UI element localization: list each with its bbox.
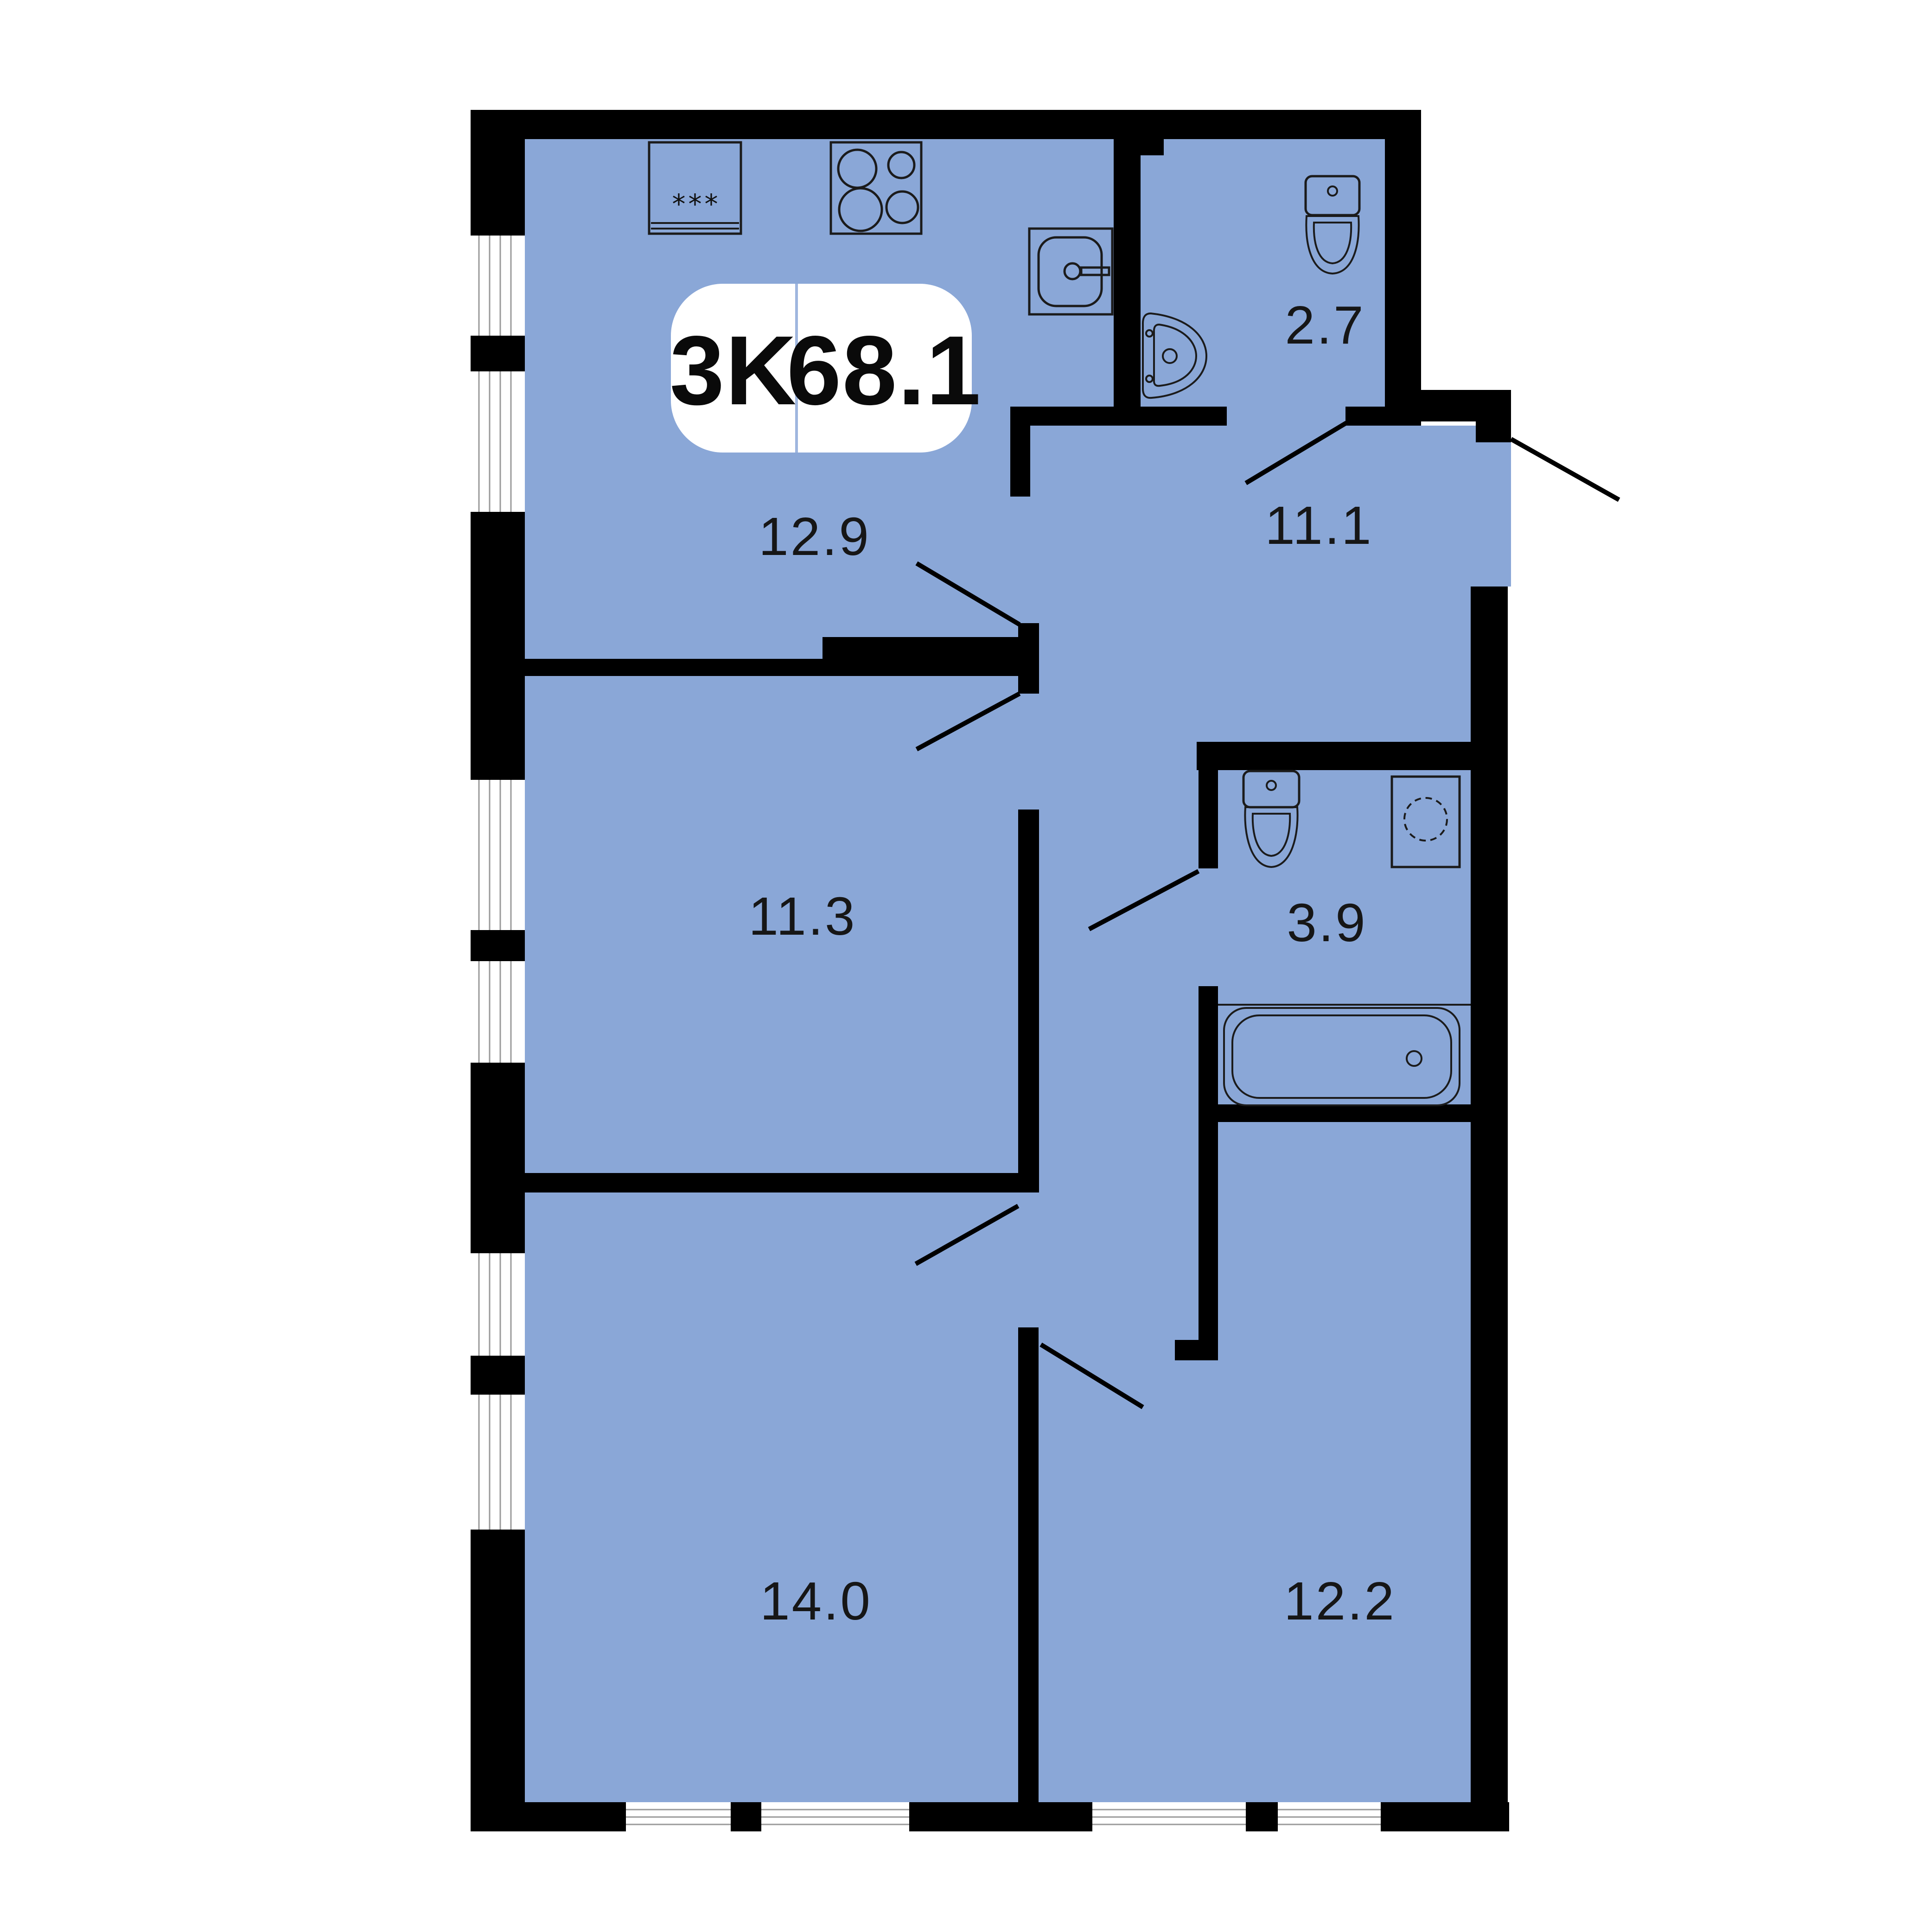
wall-bedroom1-living-divider (525, 1173, 1018, 1192)
badge-area-label: 68.1 (787, 315, 982, 425)
wall-hallway-top (1010, 407, 1227, 426)
badge-rooms-label: 3K (670, 315, 797, 425)
wall-B (1199, 986, 1218, 1360)
window (471, 780, 525, 930)
wall-entrance-jamb (1476, 421, 1511, 442)
wall-wc-notch (1114, 139, 1164, 155)
wall-bathroom-left (1199, 770, 1218, 868)
floor-bedroom2 (1039, 1122, 1471, 1802)
wall-hallway-L-drop (1010, 426, 1030, 497)
wall-right-lower (1471, 587, 1508, 1831)
wall-A-nib (1018, 623, 1039, 694)
wall-top (471, 110, 1421, 139)
floor-wc (1141, 155, 1385, 407)
bedroom1-area-label: 11.3 (748, 886, 856, 946)
wall-bottom-seg3 (909, 1802, 1092, 1831)
window (1278, 1802, 1381, 1831)
wall-A-lower (1018, 1327, 1039, 1802)
wall-bathroom-top (1197, 742, 1471, 770)
floor-wc-top (1164, 139, 1385, 155)
living-area-label: 14.0 (760, 1571, 872, 1631)
wall-kitchen-wc-divider (1114, 139, 1141, 407)
window (626, 1802, 731, 1831)
window (761, 1802, 909, 1831)
floor-entrance-opening (1476, 442, 1511, 587)
floor-wc-door-opening (1227, 407, 1345, 426)
window (471, 371, 525, 512)
window (471, 236, 525, 336)
floor-bathroom-door-opening (1199, 868, 1218, 986)
floor-plan-page: *** (0, 0, 1932, 1932)
wall-left-seg5 (471, 1063, 525, 1253)
floor-plan: *** (0, 0, 1932, 1932)
apartment-badge: 3K 68.1 (670, 284, 982, 453)
fridge-stars: *** (672, 188, 721, 220)
window (471, 1253, 525, 1356)
window (471, 961, 525, 1063)
wall-bottom-seg1 (471, 1802, 626, 1831)
wall-right-upper (1385, 139, 1421, 390)
wall-kitchen-bottom-thick (823, 637, 1018, 676)
wall-left-seg6 (471, 1356, 525, 1395)
bedroom2-area-label: 12.2 (1284, 1571, 1396, 1631)
wall-bathtub-bottom (1199, 1104, 1471, 1122)
wall-A-mid (1018, 810, 1039, 1192)
entrance-door-swing (1511, 439, 1619, 500)
bathroom-area-label: 3.9 (1287, 893, 1367, 953)
window (1092, 1802, 1246, 1831)
wc-area-label: 2.7 (1285, 295, 1365, 355)
wall-wc-door-right (1345, 407, 1421, 426)
kitchen-area-label: 12.9 (759, 506, 871, 567)
hallway-area-label: 11.1 (1265, 495, 1373, 555)
wall-kitchen-bottom-thin (525, 659, 823, 676)
wall-left-seg2 (471, 336, 525, 371)
wall-left-seg7 (471, 1530, 525, 1831)
wall-left-seg4 (471, 930, 525, 961)
wall-B-foot (1175, 1340, 1218, 1360)
wall-left-seg3 (471, 512, 525, 780)
wall-bottom-seg2 (731, 1802, 761, 1831)
wall-left-seg1 (471, 110, 525, 236)
window (471, 1395, 525, 1530)
wall-bottom-seg4 (1246, 1802, 1278, 1831)
